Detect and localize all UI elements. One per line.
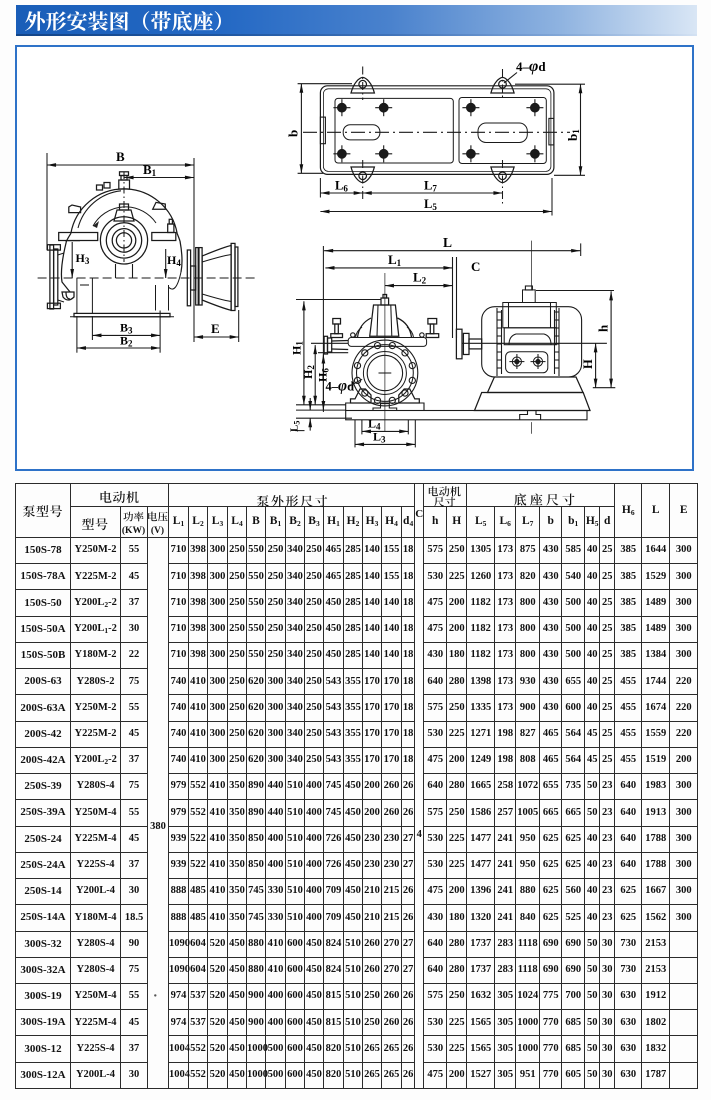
svg-text:b: b — [286, 130, 301, 137]
svg-text:L6: L6 — [335, 179, 348, 194]
svg-text:L1: L1 — [388, 252, 402, 268]
svg-text:4–φd: 4–φd — [516, 58, 546, 75]
svg-text:L5: L5 — [289, 421, 302, 432]
svg-text:B1: B1 — [143, 162, 157, 178]
svg-text:H2: H2 — [301, 365, 316, 379]
svg-text:H3: H3 — [76, 251, 90, 266]
svg-text:H1: H1 — [290, 341, 305, 355]
svg-text:H: H — [581, 359, 595, 369]
svg-text:h: h — [596, 324, 611, 332]
svg-text:L7: L7 — [424, 179, 437, 194]
svg-text:L: L — [443, 235, 452, 250]
svg-text:b1: b1 — [565, 129, 581, 141]
svg-text:L2: L2 — [413, 270, 427, 286]
svg-text:E: E — [211, 321, 220, 336]
svg-text:C: C — [471, 259, 480, 274]
svg-text:L5: L5 — [424, 197, 437, 212]
svg-text:H4: H4 — [167, 253, 181, 268]
svg-text:B: B — [116, 149, 125, 164]
